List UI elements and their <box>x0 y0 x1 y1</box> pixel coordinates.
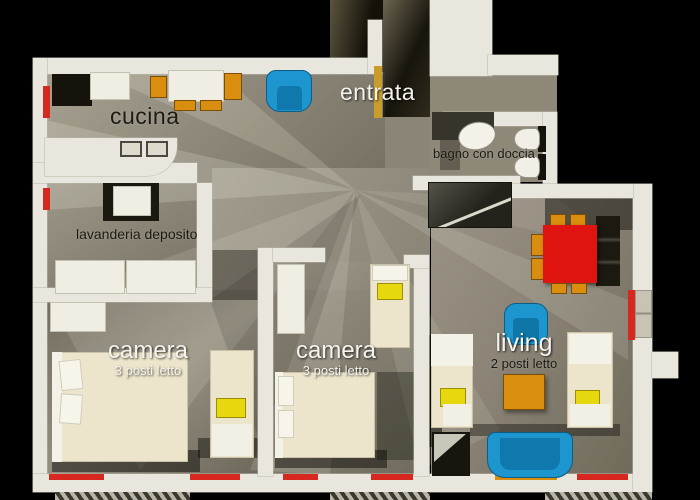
pillow <box>278 410 294 438</box>
wall-entrance-block <box>430 0 492 76</box>
pillow <box>372 265 408 281</box>
shower <box>428 182 512 228</box>
kitchen-table <box>168 70 224 102</box>
bed-blanket <box>212 424 252 456</box>
wardrobe <box>277 264 305 334</box>
balcony-deck <box>545 492 652 500</box>
radiator <box>43 188 50 210</box>
room-capacity: 3 posti letto <box>98 364 198 378</box>
wall-left <box>33 58 47 482</box>
wall-divider-camera2-living <box>414 255 429 476</box>
balcony-deck <box>55 492 190 500</box>
radiator <box>577 474 628 480</box>
wall-camera2-top <box>273 248 325 262</box>
room-name: cucina <box>110 104 179 129</box>
room-name: bagno con doccia <box>433 147 535 161</box>
wall-laundry-right <box>197 183 212 300</box>
coffee-table <box>503 374 545 410</box>
entry-armchair-seat <box>277 86 302 110</box>
sofa-bed-back <box>431 334 473 366</box>
kitchen-sink <box>120 141 142 157</box>
wall-bath-outer <box>488 55 558 75</box>
radiator <box>49 474 104 480</box>
room-label-camera-1: camera 3 posti letto <box>98 338 198 378</box>
sofa-seat <box>500 438 560 470</box>
room-capacity: 2 posti letto <box>474 357 574 371</box>
radiator <box>283 474 318 480</box>
wall-right-bump <box>652 352 678 378</box>
radiator <box>628 290 635 340</box>
room-capacity: 3 posti letto <box>286 364 386 378</box>
dining-chairs-dark <box>596 216 620 286</box>
wardrobe <box>55 260 125 294</box>
sofa-bed-back <box>569 334 611 364</box>
pillow <box>278 376 294 406</box>
room-name: entrata <box>340 80 415 105</box>
laundry-appliance <box>113 186 151 216</box>
bed-shadow <box>377 372 419 460</box>
radiator <box>371 474 413 480</box>
room-label-cucina: cucina <box>110 104 179 129</box>
kitchen-chair <box>224 73 242 100</box>
tv-cabinet-panel <box>434 434 466 462</box>
room-label-camera-2: camera 3 posti letto <box>286 338 386 378</box>
kitchen-chair <box>200 100 222 111</box>
fridge <box>52 74 92 106</box>
kitchen-chair <box>150 76 167 98</box>
room-name: living <box>474 330 574 357</box>
radiator <box>43 86 50 118</box>
room-label-bagno: bagno con doccia <box>433 147 535 161</box>
shower-glass-line <box>428 195 512 228</box>
pillow-yellow <box>216 398 246 418</box>
cabinet <box>50 302 106 332</box>
pillow <box>58 359 83 391</box>
radiator <box>190 474 240 480</box>
kitchen-cabinet <box>90 72 130 100</box>
wardrobe <box>126 260 196 294</box>
dining-chair <box>571 283 587 294</box>
doorway-shadow <box>212 250 258 300</box>
pillow <box>59 393 83 424</box>
dining-table <box>543 225 597 283</box>
room-label-entrata: entrata <box>340 80 415 105</box>
kitchen-sink <box>146 141 168 157</box>
room-name: camera <box>98 338 198 364</box>
wall-right <box>633 184 652 492</box>
wall-shelf <box>635 290 652 338</box>
pillow-yellow <box>377 283 403 300</box>
room-name: camera <box>286 338 386 364</box>
bed-blanket <box>443 404 471 426</box>
room-label-living: living 2 posti letto <box>474 330 574 371</box>
balcony-deck <box>330 492 430 500</box>
wall-divider-camera1-camera2 <box>258 248 273 476</box>
room-label-lavanderia: lavanderia deposito <box>76 227 197 242</box>
floor-plan: cucina entrata bagno con doccia lavander… <box>0 0 700 500</box>
bed-blanket <box>570 404 610 426</box>
room-name: lavanderia deposito <box>76 227 197 242</box>
tv-cabinet <box>432 432 470 476</box>
wall-living-top <box>512 184 633 198</box>
dining-chair <box>551 283 567 294</box>
